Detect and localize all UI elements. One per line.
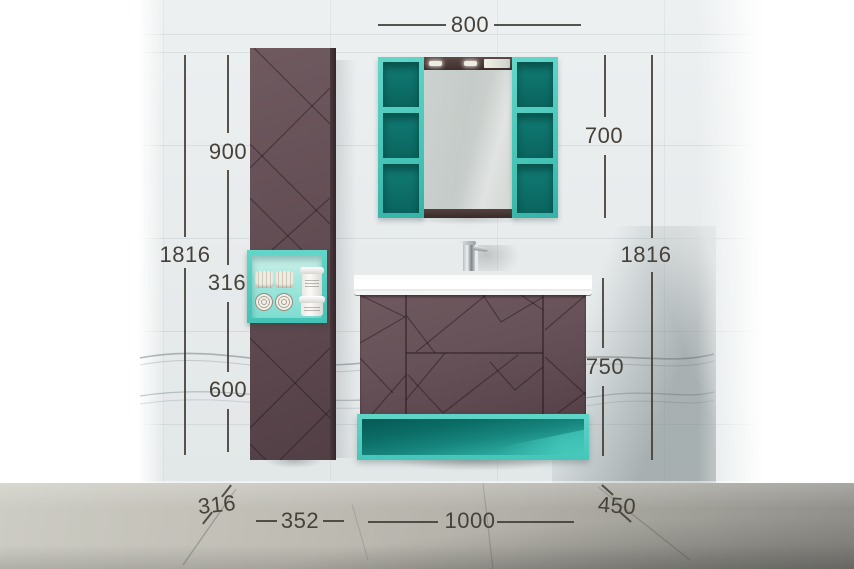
dim-line	[497, 521, 574, 523]
mirror-bottom-frame	[424, 209, 512, 218]
mirror	[424, 70, 512, 209]
jar-label	[304, 307, 320, 313]
mirror-cabinet-shadow	[380, 218, 556, 228]
open-shelf-interior	[252, 255, 322, 318]
towel-roll	[255, 293, 273, 311]
dim-line	[227, 302, 229, 372]
floor-shading	[0, 483, 854, 569]
tall-cabinet-side-panel	[330, 48, 336, 460]
dim-label-mirror-height: 700	[576, 125, 632, 147]
dim-line	[604, 55, 606, 117]
tall-cabinet-open-shelf	[247, 250, 327, 323]
dim-label-vanity-height: 750	[577, 356, 633, 378]
mirror-side-shelf-right	[512, 57, 558, 218]
dim-label-right-total: 1816	[618, 244, 674, 266]
wall-light-right	[698, 0, 854, 483]
shelf-cell	[383, 62, 419, 107]
mirror-side-shelf-left	[378, 57, 424, 218]
folded-towel	[275, 271, 294, 288]
dim-line	[184, 55, 186, 237]
dim-line	[227, 170, 229, 265]
dim-label-left-lower: 600	[200, 379, 256, 401]
dim-line	[227, 55, 229, 133]
jar-lid	[299, 296, 325, 303]
tall-side-cabinet	[250, 48, 336, 460]
shelf-cell	[517, 62, 553, 107]
mirror-cabinet	[378, 55, 558, 218]
dim-line	[602, 278, 604, 348]
dim-label-left-box: 316	[199, 272, 255, 294]
spot-light	[464, 61, 477, 66]
shelf-cell	[383, 164, 419, 213]
shelf-cell	[517, 164, 553, 213]
dim-label-left-upper: 900	[200, 141, 256, 163]
vanity-shelf-interior	[362, 419, 584, 455]
dim-line	[651, 55, 653, 238]
faucet-top	[462, 241, 476, 245]
folded-towel	[255, 271, 274, 288]
dim-label-floor-center-width: 1000	[437, 510, 503, 532]
dim-line	[651, 272, 653, 460]
dim-line	[184, 268, 186, 455]
vanity-etched-pattern	[360, 295, 586, 414]
vanity-open-shelf	[357, 414, 589, 460]
towel-roll	[275, 293, 293, 311]
dim-label-left-total: 1816	[157, 244, 213, 266]
shelf-cell	[383, 113, 419, 158]
shelf-cell	[517, 113, 553, 158]
dim-line	[494, 24, 581, 26]
dim-line	[378, 24, 446, 26]
dim-label-mirror-width: 800	[442, 14, 498, 36]
mirror-section	[424, 57, 512, 218]
jar-label	[305, 280, 319, 288]
dim-line	[368, 521, 438, 523]
sink-countertop	[354, 271, 592, 296]
cosmetic-jar	[301, 300, 323, 316]
tall-cabinet-shadow	[252, 460, 336, 472]
spot-light	[429, 61, 442, 66]
jar-lid	[300, 267, 324, 274]
dim-label-floor-right-depth: 450	[588, 493, 645, 519]
dim-line	[602, 386, 604, 456]
dim-line	[604, 155, 606, 218]
cosmetic-jar	[302, 271, 322, 297]
dim-label-floor-left-width: 352	[272, 510, 328, 532]
product-dimension-diagram: 800 900 1816 316 600 700 1816 750 316 35…	[0, 0, 854, 569]
vanity-cabinet	[360, 295, 586, 414]
mirror-light-bar	[424, 57, 512, 70]
light-reflection	[484, 59, 510, 68]
vanity-shadow	[360, 460, 590, 476]
dim-line	[227, 409, 229, 452]
